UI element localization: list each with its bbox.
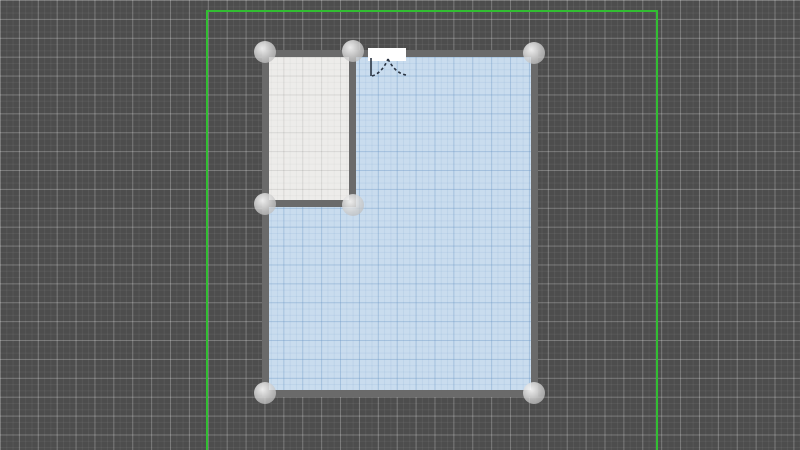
corner-handle-node-bottom-left[interactable] <box>254 382 276 404</box>
room-small-room[interactable] <box>269 57 349 200</box>
wall-left-wall[interactable] <box>262 50 269 397</box>
corner-handle-node-bottom-right[interactable] <box>523 382 545 404</box>
corner-handle-node-top-left[interactable] <box>254 41 276 63</box>
corner-handle-node-top-divider[interactable] <box>342 40 364 62</box>
floorplan-canvas[interactable] <box>0 0 800 450</box>
corner-handle-node-mid-left[interactable] <box>254 193 276 215</box>
corner-handle-node-divider-bottom[interactable] <box>342 194 364 216</box>
plot-boundary-left <box>206 10 208 450</box>
wall-bottom-wall[interactable] <box>262 390 538 397</box>
wall-right-wall[interactable] <box>531 50 538 397</box>
wall-divider-wall-vertical[interactable] <box>349 50 356 207</box>
plot-boundary-top <box>206 10 658 12</box>
plot-boundary-right <box>656 10 658 450</box>
corner-handle-node-top-right[interactable] <box>523 42 545 64</box>
door-swing-icon[interactable] <box>365 57 425 93</box>
floorplan-scene <box>0 0 800 450</box>
